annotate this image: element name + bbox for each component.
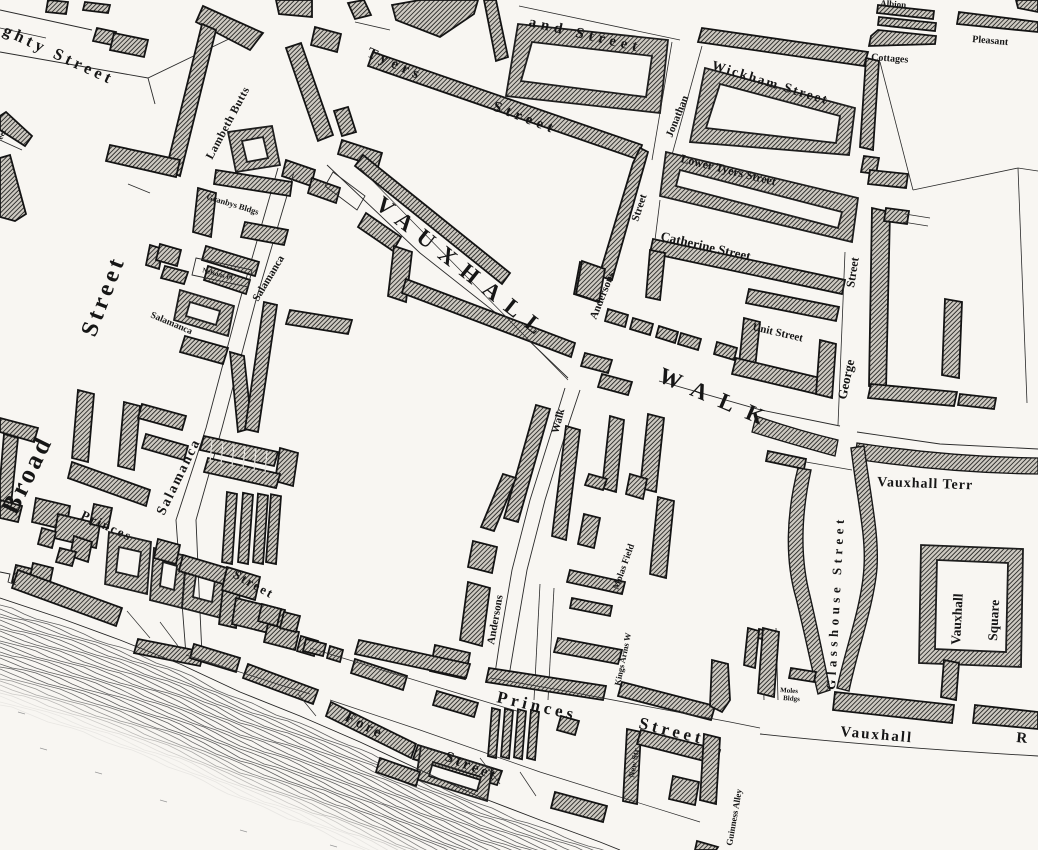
svg-text:Square: Square [985,599,1002,641]
svg-text:Vauxhall: Vauxhall [948,593,966,645]
svg-text:R: R [1016,730,1028,747]
svg-text:Bldgs: Bldgs [783,694,801,703]
